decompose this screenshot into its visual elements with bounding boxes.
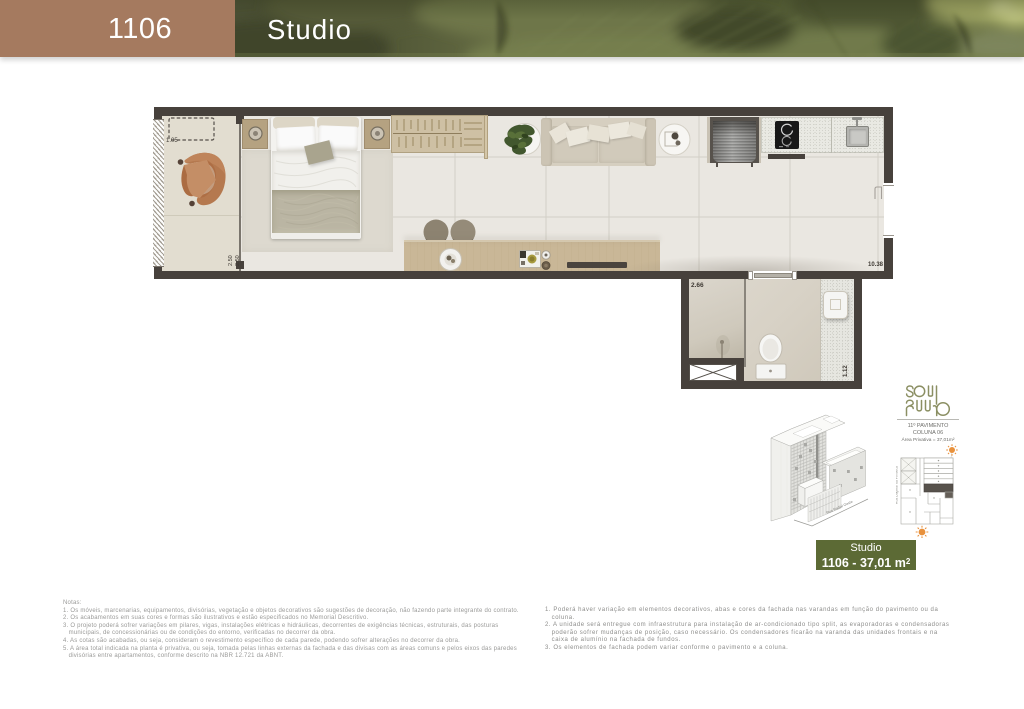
svg-text:Rua Dagmar da Fonseca: Rua Dagmar da Fonseca [896, 466, 899, 504]
